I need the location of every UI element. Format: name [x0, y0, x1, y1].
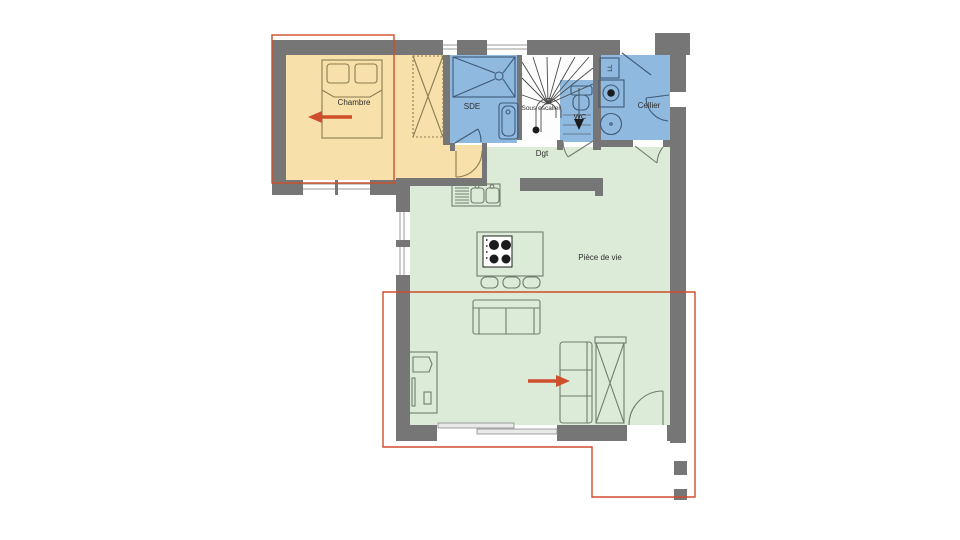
wall-top-3	[527, 40, 620, 55]
window-kitchen-left-2	[400, 247, 404, 275]
wall-right-1	[670, 51, 686, 92]
wall-dressing-sde	[443, 55, 450, 145]
label-cellier: Cellier	[638, 101, 661, 110]
wall-wing-bottom-mullion	[335, 180, 338, 195]
window-kitchen-left-1	[400, 212, 404, 240]
burner	[502, 255, 511, 264]
label-dgt: Dgt	[536, 149, 549, 158]
stair-newel-post	[533, 127, 540, 134]
wall-cellier-bottom-1	[598, 140, 633, 147]
label-sous-escalier: Sous escalier	[521, 105, 561, 112]
sliding-bay-pane-2	[477, 429, 557, 434]
wall-wing-bottom-2	[370, 180, 396, 195]
label-piece-de-vie: Pièce de vie	[578, 253, 622, 262]
floor-plan-page: Chambre SDE Sous escalier WC LL Cellier …	[0, 0, 960, 540]
wall-main-left-mullion	[396, 240, 410, 247]
wall-left-wing	[272, 40, 286, 195]
label-sde: SDE	[464, 102, 480, 111]
room-wc-area	[560, 80, 593, 142]
label-wc: WC	[574, 112, 587, 121]
wall-bottom-1	[396, 425, 437, 441]
washing-machine-drum	[607, 89, 615, 97]
window-chambre-2	[338, 184, 370, 189]
wall-bottom-2	[557, 425, 627, 441]
wall-top-1	[272, 40, 443, 55]
window-top-sde	[487, 45, 527, 49]
wall-sde-bottom-jamb	[450, 143, 455, 151]
wall-dgt-kitchen-stub	[595, 178, 603, 196]
wall-main-left-2	[396, 275, 410, 425]
window-top-dressing	[443, 45, 457, 49]
sliding-bay-pane-1	[438, 423, 514, 428]
wall-dgt-kitchen	[520, 178, 603, 191]
terrace-post-2	[674, 489, 687, 500]
burner	[501, 240, 511, 250]
wall-corridor-bottom	[396, 178, 483, 186]
floor-plan-drawing: Chambre SDE Sous escalier WC LL Cellier …	[0, 0, 960, 540]
burner	[490, 255, 499, 264]
window-chambre-1	[303, 184, 335, 189]
label-chambre: Chambre	[338, 98, 371, 107]
label-ll: LL	[607, 64, 614, 72]
wall-right-2	[670, 107, 686, 443]
wall-top-2	[457, 40, 487, 55]
wall-wing-bottom-1	[272, 180, 303, 195]
wall-cellier-bottom-2	[663, 140, 670, 147]
burner	[489, 240, 499, 250]
wall-stair-door-jamb	[557, 140, 563, 150]
terrace-post-1	[674, 461, 687, 475]
